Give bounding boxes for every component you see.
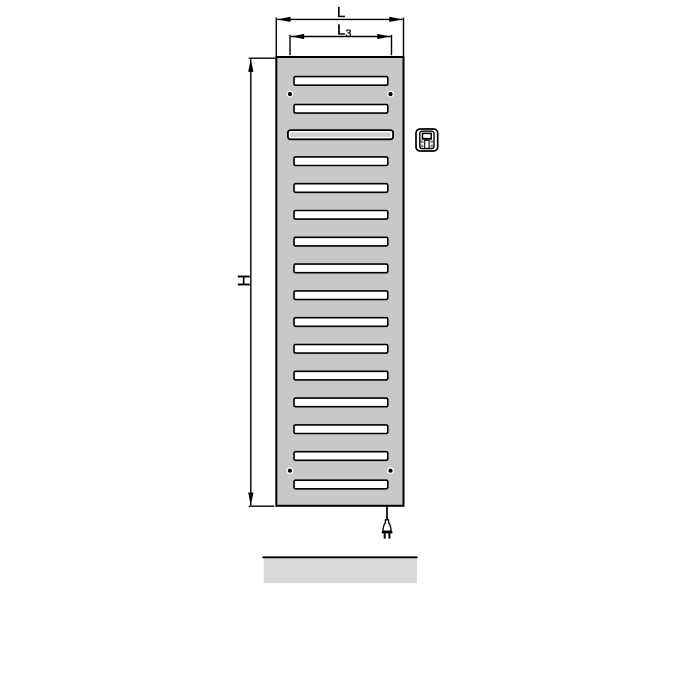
svg-text:H: H	[234, 274, 253, 286]
svg-text:L: L	[337, 4, 345, 21]
